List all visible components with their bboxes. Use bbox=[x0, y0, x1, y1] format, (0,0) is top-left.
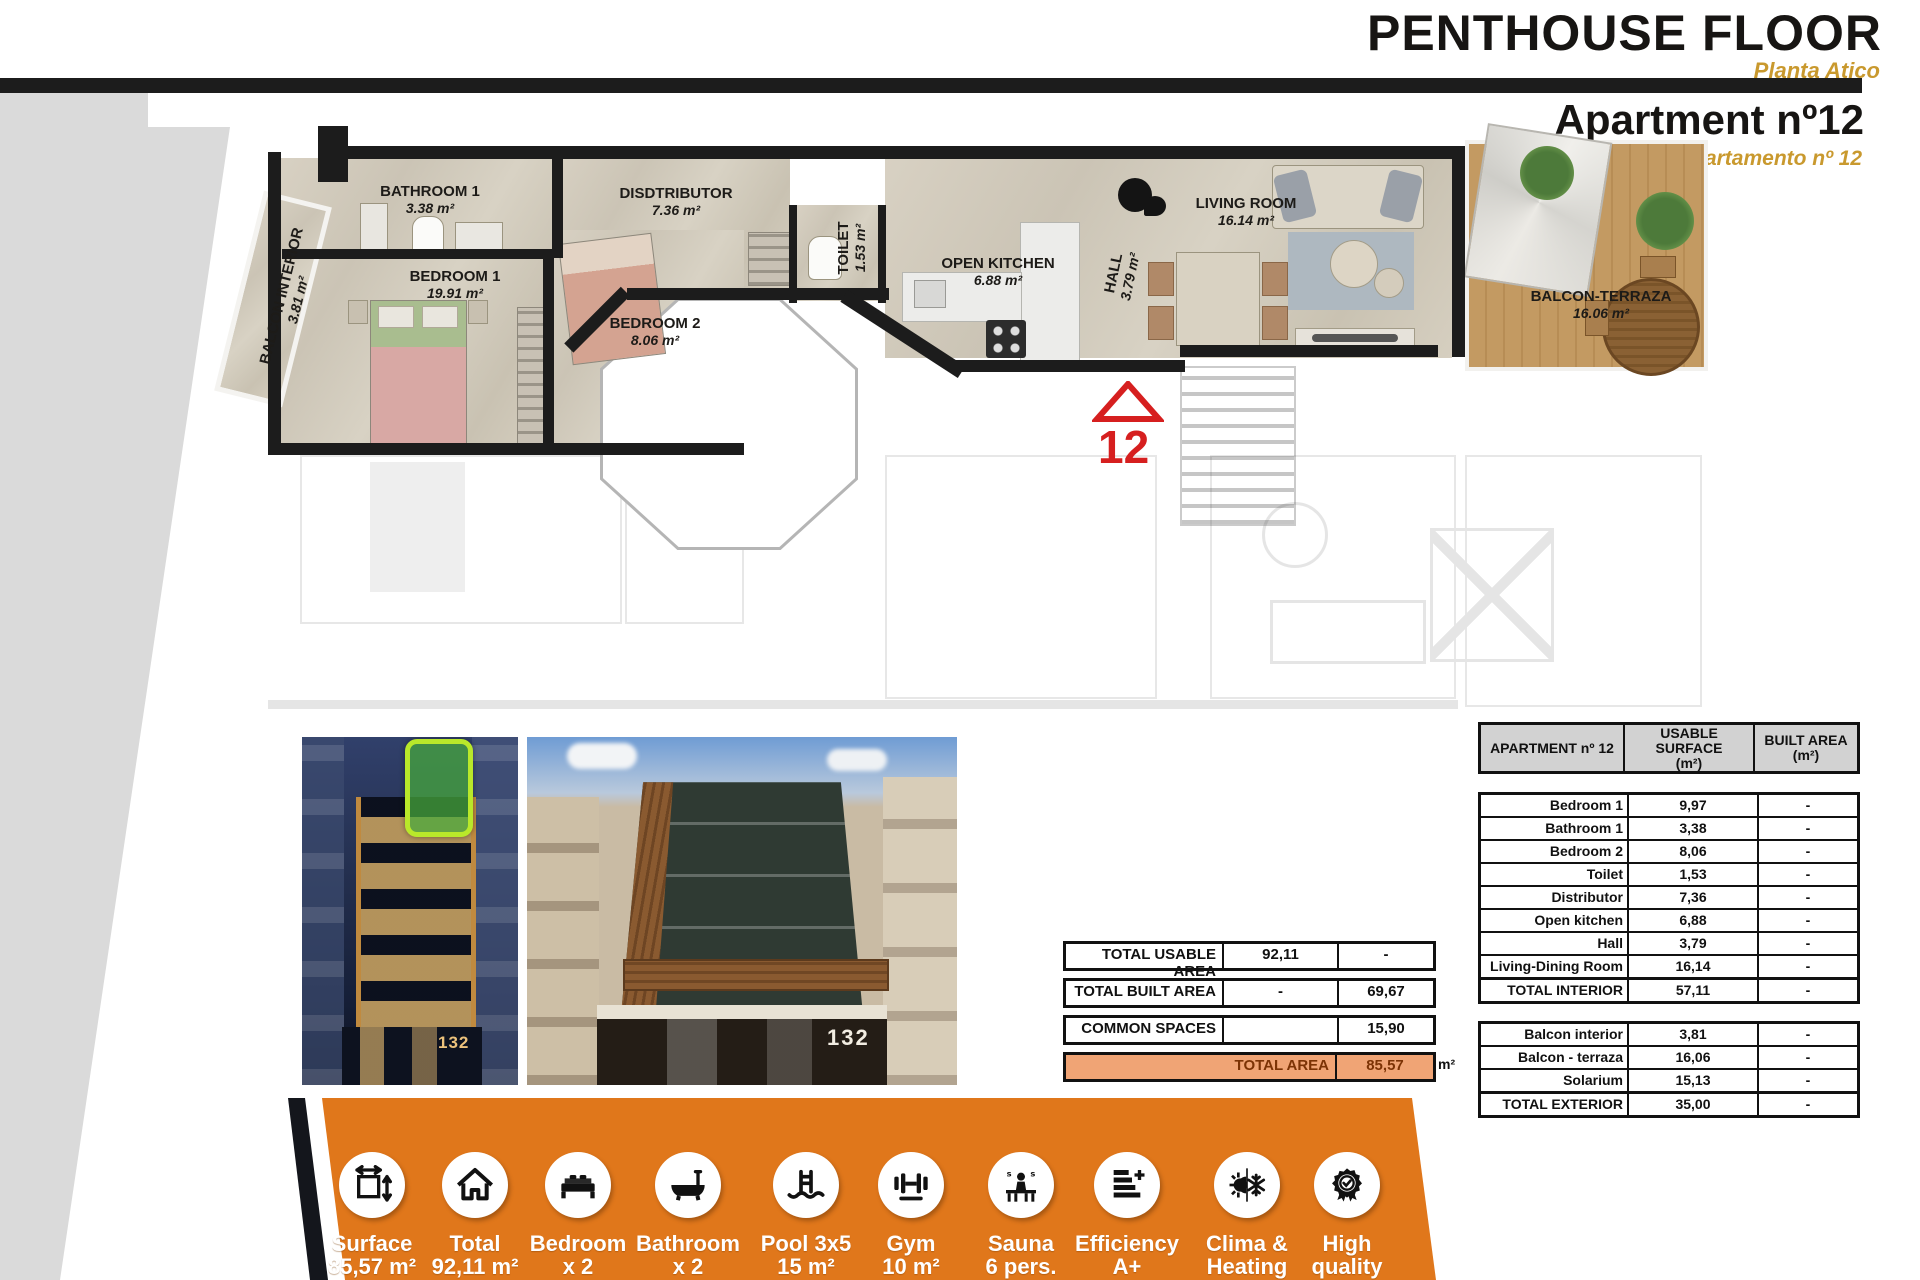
closet-distributor bbox=[748, 232, 792, 286]
kitchen-hob bbox=[986, 320, 1026, 358]
sauna-icon: ss bbox=[1001, 1165, 1041, 1205]
svg-text:s: s bbox=[1007, 1169, 1012, 1179]
quality-icon bbox=[1327, 1165, 1367, 1205]
table-row: Bedroom 19,97- bbox=[1481, 795, 1857, 816]
exterior-rows: Balcon interior3,81- Balcon - terraza16,… bbox=[1478, 1021, 1860, 1118]
cat-icon bbox=[1144, 196, 1166, 216]
feature-efficiency: EfficiencyA+ bbox=[1062, 1152, 1192, 1278]
photo2-street-number: 132 bbox=[827, 1025, 870, 1051]
surface-icon bbox=[352, 1165, 392, 1205]
climate-icon bbox=[1227, 1165, 1267, 1205]
table-row: Toilet1,53- bbox=[1481, 862, 1857, 885]
svg-text:s: s bbox=[1030, 1169, 1035, 1179]
table-row: Solarium15,13- bbox=[1481, 1068, 1857, 1091]
table-row: Distributor7,36- bbox=[1481, 885, 1857, 908]
room-label-toilet: TOILET1.53 m² bbox=[836, 221, 868, 274]
total-built-area-row: TOTAL BUILT AREA-69,67 bbox=[1063, 978, 1436, 1008]
table-row: Bedroom 28,06- bbox=[1481, 839, 1857, 862]
ghost-stairs bbox=[1180, 366, 1296, 526]
total-interior-row: TOTAL INTERIOR57,11- bbox=[1481, 977, 1857, 1001]
common-spaces-row: COMMON SPACES15,90 bbox=[1063, 1015, 1436, 1045]
gym-icon bbox=[891, 1165, 931, 1205]
room-label-open-kitchen: OPEN KITCHEN6.88 m² bbox=[941, 256, 1054, 288]
room-label-bathroom1: BATHROOM 13.38 m² bbox=[380, 184, 480, 216]
table-row: Living-Dining Room16,14- bbox=[1481, 954, 1857, 977]
night-facade-photo: 132 bbox=[302, 737, 518, 1085]
bed-icon bbox=[558, 1165, 598, 1205]
table-row: Bathroom 13,38- bbox=[1481, 816, 1857, 839]
room-label-bedroom1: BEDROOM 119.91 m² bbox=[410, 269, 501, 301]
floor-plan: BALCON INTERIOR3.81 m² BATHROOM 13.38 m²… bbox=[0, 0, 1920, 740]
total-usable-area-row: TOTAL USABLE AREA92,11- bbox=[1063, 941, 1436, 971]
house-icon bbox=[455, 1165, 495, 1205]
pool-icon bbox=[786, 1165, 826, 1205]
table-row: Balcon - terraza16,06- bbox=[1481, 1045, 1857, 1068]
interior-rows: Bedroom 19,97- Bathroom 13,38- Bedroom 2… bbox=[1478, 792, 1860, 1004]
wood-balcony bbox=[623, 959, 889, 991]
total-exterior-row: TOTAL EXTERIOR35,00- bbox=[1481, 1091, 1857, 1115]
room-label-distributor: DISDTRIBUTOR7.36 m² bbox=[619, 186, 732, 218]
penthouse-highlight-box bbox=[405, 739, 473, 837]
table-row: Hall3,79- bbox=[1481, 931, 1857, 954]
room-label-balcon-terraza: BALCON-TERRAZA16.06 m² bbox=[1531, 289, 1672, 321]
dining-table bbox=[1176, 252, 1260, 346]
bathtub-icon bbox=[668, 1165, 708, 1205]
photo1-street-number: 132 bbox=[438, 1033, 469, 1053]
total-area-unit: m² bbox=[1438, 1056, 1455, 1072]
efficiency-icon bbox=[1107, 1165, 1147, 1205]
feature-bathroom: Bathroomx 2 bbox=[623, 1152, 753, 1278]
unit-marker-triangle bbox=[1092, 381, 1164, 423]
total-area-row: TOTAL AREA85,57 bbox=[1063, 1052, 1436, 1082]
table-row: Balcon interior3,81- bbox=[1481, 1024, 1857, 1045]
table-row: Open kitchen6,88- bbox=[1481, 908, 1857, 931]
terrace-plant bbox=[1636, 192, 1694, 250]
area-table-header: APARTMENT nº 12 USABLE SURFACE(m²) BUILT… bbox=[1478, 722, 1860, 774]
kitchen-counter bbox=[1020, 222, 1080, 362]
feature-quality: Highquality bbox=[1282, 1152, 1412, 1278]
terrace-plant bbox=[1520, 146, 1574, 200]
room-label-living-room: LIVING ROOM16.14 m² bbox=[1196, 196, 1297, 228]
unit-marker-number: 12 bbox=[1098, 420, 1149, 474]
area-table: APARTMENT nº 12 USABLE SURFACE(m²) BUILT… bbox=[1478, 722, 1860, 1118]
day-facade-photo: 132 bbox=[527, 737, 957, 1085]
ghost-parasol bbox=[1430, 528, 1554, 662]
room-label-bedroom2: BEDROOM 28.06 m² bbox=[610, 316, 701, 348]
